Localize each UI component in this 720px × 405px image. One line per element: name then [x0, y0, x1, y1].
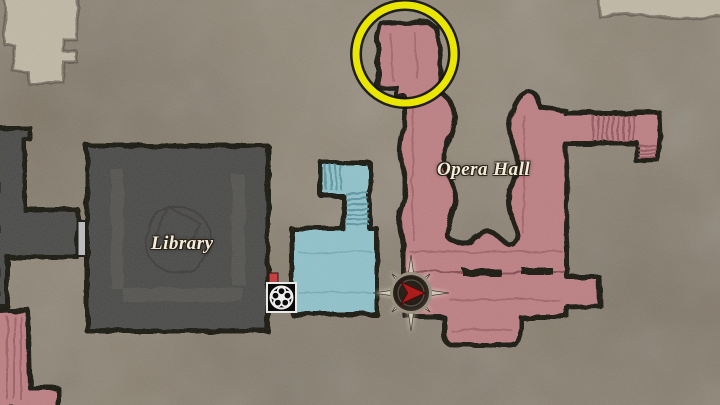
mechanism-icon — [267, 283, 296, 312]
map-geometry — [0, 0, 720, 405]
door-marker — [78, 221, 87, 256]
castle-map: Opera Hall Library — [0, 0, 720, 405]
